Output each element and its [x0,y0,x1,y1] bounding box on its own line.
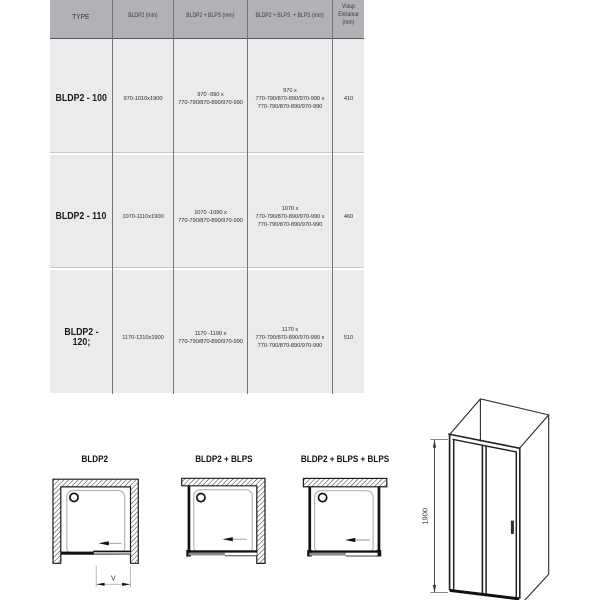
svg-text:V: V [111,575,116,582]
svg-text:1900: 1900 [421,508,430,525]
